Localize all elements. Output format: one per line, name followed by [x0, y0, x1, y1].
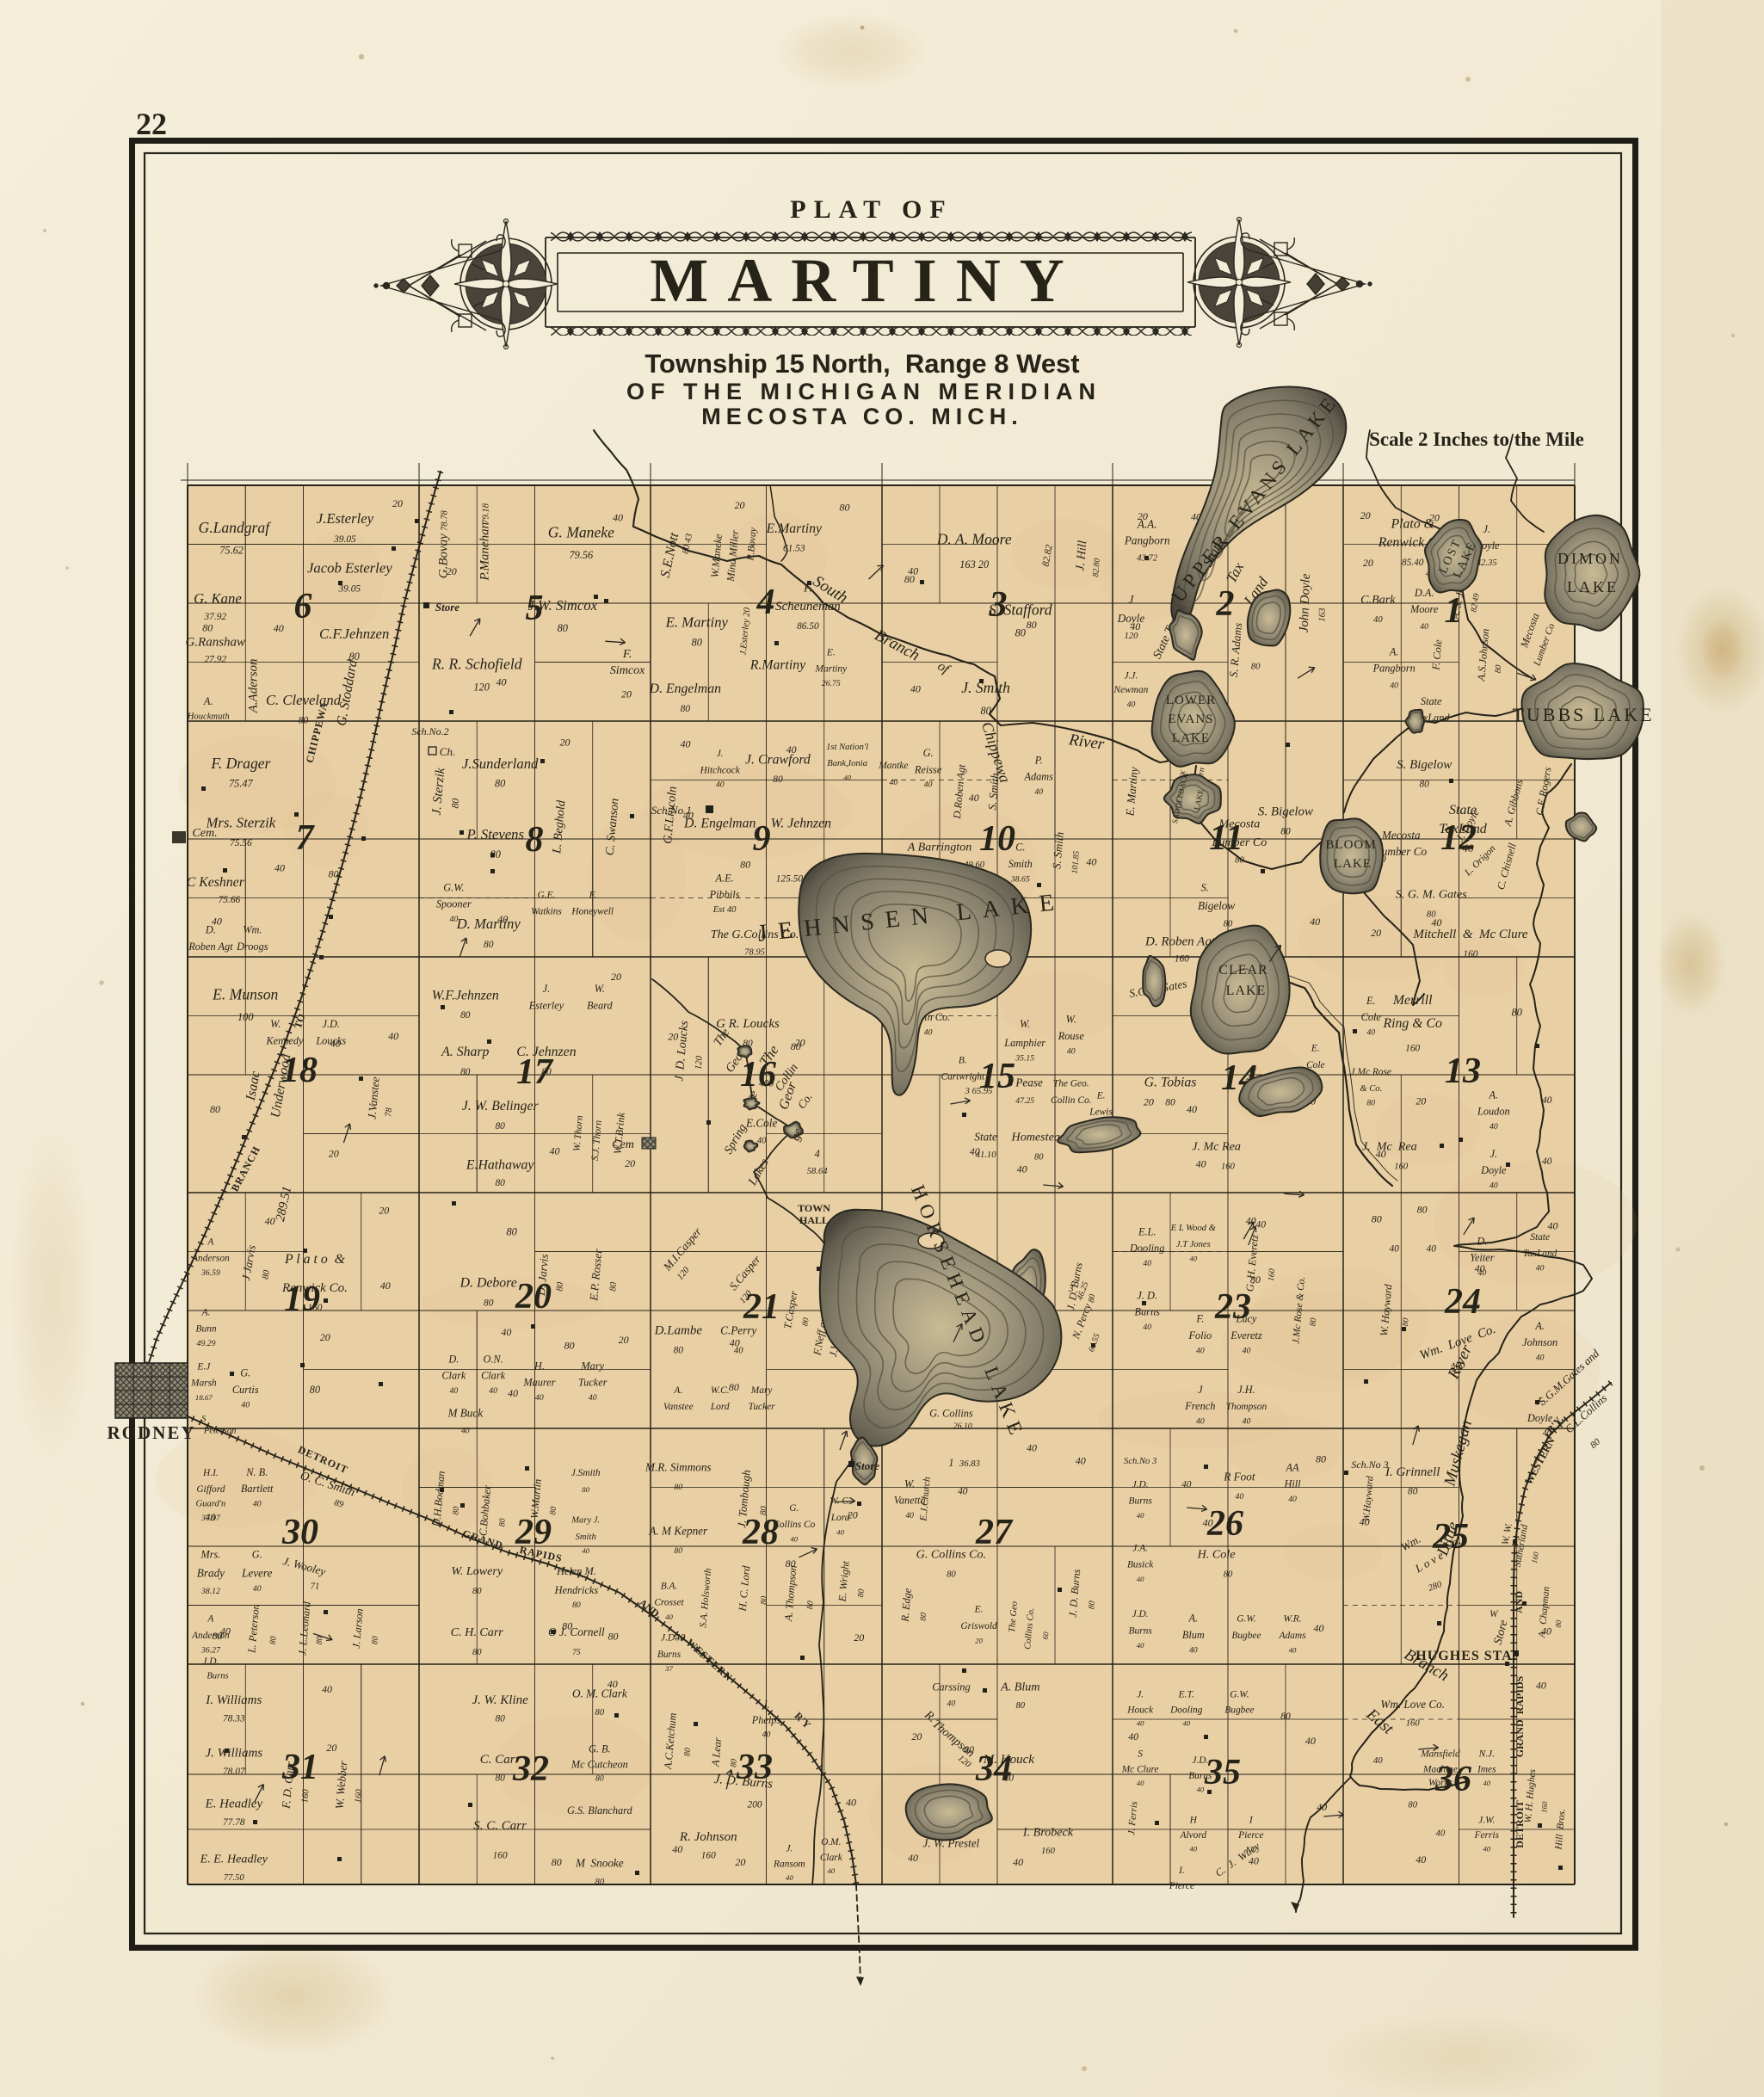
svg-text:Burns: Burns [657, 1650, 682, 1660]
svg-text:Bunn: Bunn [195, 1324, 216, 1335]
svg-text:E.J: E.J [196, 1362, 211, 1372]
svg-text:Carssing: Carssing [932, 1681, 970, 1693]
svg-text:E. Martiny: E. Martiny [665, 614, 729, 630]
svg-text:80: 80 [564, 1339, 575, 1351]
svg-text:Mary: Mary [580, 1360, 604, 1372]
svg-text:125.50: 125.50 [776, 873, 804, 884]
svg-text:27.92: 27.92 [204, 655, 226, 665]
svg-text:Thompson: Thompson [1226, 1402, 1267, 1412]
svg-text:80: 80 [805, 1601, 816, 1610]
svg-text:G.W.: G.W. [443, 881, 464, 893]
svg-text:40: 40 [1305, 1735, 1316, 1747]
svg-text:J. Hill: J. Hill [1073, 540, 1089, 572]
svg-text:40: 40 [905, 1511, 914, 1520]
svg-text:160: 160 [493, 1850, 508, 1860]
svg-text:80: 80 [451, 1506, 461, 1515]
svg-text:78.33: 78.33 [223, 1714, 245, 1724]
svg-text:40: 40 [1255, 1218, 1266, 1230]
svg-text:160: 160 [1221, 1163, 1236, 1172]
svg-text:40: 40 [843, 774, 851, 782]
svg-text:40: 40 [910, 683, 921, 695]
svg-text:J. Mc Rea: J. Mc Rea [1192, 1140, 1241, 1154]
svg-text:40: 40 [1027, 1441, 1037, 1453]
svg-text:H. Cole: H. Cole [1197, 1548, 1236, 1562]
svg-text:8: 8 [526, 820, 544, 860]
svg-text:20: 20 [559, 736, 570, 748]
svg-text:160: 160 [300, 1788, 311, 1803]
svg-text:40: 40 [947, 1699, 956, 1709]
svg-text:LAKE: LAKE [1334, 857, 1372, 871]
svg-text:Alvord: Alvord [1180, 1830, 1207, 1841]
svg-text:Brady: Brady [197, 1567, 225, 1580]
svg-text:40: 40 [1463, 842, 1475, 854]
svg-text:J.: J. [717, 749, 724, 759]
svg-text:Dooling: Dooling [1129, 1243, 1164, 1255]
svg-text:36.59: 36.59 [200, 1268, 220, 1278]
svg-text:20: 20 [326, 1742, 336, 1754]
svg-text:80: 80 [1034, 1153, 1044, 1163]
svg-text:Levere: Levere [241, 1567, 273, 1580]
svg-text:101.85: 101.85 [1070, 850, 1082, 874]
svg-text:80: 80 [558, 622, 568, 634]
svg-text:DETROIT: DETROIT [1514, 1800, 1526, 1847]
svg-text:G R. Loucks: G R. Loucks [716, 1017, 780, 1031]
svg-text:80: 80 [495, 778, 505, 790]
svg-text:80: 80 [310, 1384, 320, 1396]
svg-text:G.W.: G.W. [1237, 1614, 1255, 1625]
svg-text:75.62: 75.62 [219, 544, 244, 556]
svg-text:80: 80 [582, 1485, 589, 1494]
svg-text:MARTINY: MARTINY [650, 246, 1082, 315]
svg-text:80: 80 [681, 704, 691, 714]
svg-text:Cem: Cem [612, 1138, 634, 1151]
svg-text:80: 80 [740, 859, 750, 871]
svg-text:80: 80 [572, 1601, 581, 1610]
svg-text:40: 40 [1189, 1645, 1198, 1655]
svg-text:34: 34 [975, 1749, 1012, 1789]
svg-text:F.: F. [622, 647, 632, 661]
svg-text:40: 40 [734, 1346, 743, 1355]
svg-text:40: 40 [1490, 1181, 1498, 1191]
svg-text:Vanstee: Vanstee [663, 1402, 694, 1412]
svg-text:E. E. Headley: E. E. Headley [200, 1852, 268, 1866]
svg-text:E.: E. [1311, 1044, 1320, 1054]
svg-text:Guard'n: Guard'n [195, 1499, 225, 1508]
svg-text:30: 30 [281, 1513, 318, 1552]
svg-text:80: 80 [773, 774, 783, 785]
svg-text:Sch.No 3: Sch.No 3 [1351, 1459, 1388, 1471]
svg-text:80: 80 [682, 1748, 693, 1757]
svg-text:Watkins: Watkins [531, 907, 562, 917]
svg-text:80: 80 [552, 1856, 562, 1868]
svg-text:Hendricks: Hendricks [554, 1584, 599, 1596]
svg-text:40: 40 [1243, 1417, 1251, 1427]
svg-text:40: 40 [1196, 1417, 1205, 1427]
svg-text:Curtis: Curtis [232, 1384, 259, 1396]
svg-text:20: 20 [735, 499, 745, 511]
svg-text:20: 20 [911, 1730, 922, 1742]
svg-text:18.67: 18.67 [195, 1393, 213, 1402]
svg-text:40: 40 [489, 1386, 497, 1396]
svg-text:LOWER: LOWER [1166, 694, 1216, 707]
svg-text:Moore: Moore [1409, 603, 1439, 615]
svg-text:40: 40 [762, 1730, 771, 1739]
svg-text:D.A.: D.A. [1414, 587, 1434, 599]
svg-text:C.: C. [1015, 842, 1025, 854]
svg-text:DIMON: DIMON [1557, 550, 1623, 567]
svg-text:W.: W. [270, 1018, 281, 1030]
svg-text:1: 1 [1445, 591, 1463, 631]
svg-text:P. Stevens: P. Stevens [466, 826, 524, 842]
svg-text:160: 160 [1175, 953, 1189, 964]
svg-text:160: 160 [1267, 1268, 1277, 1282]
svg-text:G. Maneke: G. Maneke [548, 523, 614, 540]
svg-text:75.56: 75.56 [230, 838, 252, 848]
svg-text:RODNEY: RODNEY [107, 1422, 195, 1443]
svg-text:40: 40 [388, 1030, 398, 1042]
svg-text:82.80: 82.80 [1091, 558, 1102, 577]
svg-text:80: 80 [268, 1636, 279, 1645]
svg-text:40: 40 [790, 1535, 798, 1544]
svg-text:160: 160 [1406, 1719, 1421, 1729]
svg-text:J. D.: J. D. [1137, 1289, 1157, 1301]
svg-text:120: 120 [473, 681, 489, 693]
svg-text:D. Engelman: D. Engelman [683, 816, 756, 830]
svg-text:80: 80 [1280, 1712, 1291, 1722]
svg-text:80: 80 [729, 1381, 739, 1393]
svg-text:Droogs: Droogs [236, 941, 268, 953]
svg-text:J.A.: J.A. [1132, 1543, 1148, 1553]
svg-text:Bugbee: Bugbee [1231, 1631, 1261, 1641]
svg-text:80: 80 [595, 1708, 605, 1718]
svg-text:C Keshner: C Keshner [187, 875, 245, 890]
svg-text:20: 20 [329, 1148, 339, 1160]
svg-text:18: 18 [281, 1051, 318, 1090]
svg-text:80: 80 [210, 1103, 220, 1115]
svg-text:80: 80 [1087, 1293, 1098, 1304]
svg-text:Johnson: Johnson [1522, 1336, 1557, 1348]
svg-text:C.Bark: C.Bark [1360, 593, 1396, 607]
svg-text:G.S. Blanchard: G.S. Blanchard [567, 1804, 633, 1816]
svg-text:40: 40 [450, 1386, 459, 1396]
svg-text:S. C. Carr: S. C. Carr [473, 1819, 527, 1833]
svg-text:A.: A. [1489, 1089, 1499, 1101]
svg-text:36.83: 36.83 [959, 1459, 980, 1469]
svg-text:37.92: 37.92 [203, 612, 226, 622]
svg-text:Lord: Lord [710, 1402, 730, 1412]
svg-text:47.25: 47.25 [1015, 1096, 1034, 1106]
svg-text:3: 3 [989, 585, 1008, 625]
svg-text:J.W.: J.W. [1478, 1815, 1495, 1825]
svg-text:Imes: Imes [1477, 1764, 1496, 1774]
svg-text:160: 160 [354, 1788, 364, 1803]
svg-text:80: 80 [856, 1588, 867, 1598]
svg-text:Reisse: Reisse [914, 763, 942, 775]
svg-text:79.56: 79.56 [569, 549, 594, 561]
svg-text:S.: S. [1201, 881, 1209, 893]
svg-text:A.: A. [1534, 1320, 1545, 1332]
svg-text:80: 80 [1165, 1098, 1175, 1108]
svg-text:Esterley: Esterley [528, 999, 564, 1011]
svg-text:A. M Kepner: A. M Kepner [648, 1524, 708, 1537]
svg-text:40: 40 [589, 1393, 597, 1403]
svg-text:36.27: 36.27 [200, 1645, 221, 1655]
svg-text:F.: F. [1195, 1313, 1204, 1325]
svg-text:TOWN: TOWN [798, 1202, 830, 1214]
svg-text:Bigelow: Bigelow [1198, 899, 1235, 912]
svg-text:35: 35 [1204, 1753, 1241, 1792]
svg-text:G. Tobias: G. Tobias [1144, 1076, 1197, 1090]
svg-text:The Geo.: The Geo. [1053, 1079, 1089, 1089]
svg-text:40: 40 [1310, 916, 1320, 928]
svg-text:Houckmuth: Houckmuth [187, 712, 230, 721]
svg-text:40: 40 [274, 862, 285, 874]
svg-text:Lord: Lord [830, 1513, 850, 1523]
svg-text:80: 80 [1419, 780, 1429, 790]
svg-text:80: 80 [674, 1483, 682, 1492]
svg-text:J.D.: J.D. [1132, 1480, 1149, 1490]
svg-text:160: 160 [1463, 949, 1477, 959]
svg-text:20: 20 [854, 1631, 864, 1644]
svg-text:A.A.: A.A. [1137, 517, 1157, 530]
svg-text:160: 160 [1405, 1044, 1420, 1054]
svg-text:G.: G. [240, 1367, 250, 1379]
svg-text:E.T.: E.T. [1178, 1689, 1194, 1699]
svg-text:40: 40 [1127, 700, 1136, 710]
svg-text:77.50: 77.50 [224, 1873, 245, 1883]
svg-text:D. Martiny: D. Martiny [456, 916, 521, 932]
svg-text:Busick: Busick [1127, 1560, 1154, 1570]
svg-text:58.64: 58.64 [807, 1167, 829, 1176]
svg-text:A.Aderson: A.Aderson [247, 658, 261, 713]
svg-text:80: 80 [595, 1878, 605, 1887]
svg-text:S. Bigelow: S. Bigelow [1258, 805, 1313, 819]
svg-text:Adams: Adams [1279, 1631, 1307, 1641]
svg-text:R Foot: R Foot [1223, 1470, 1255, 1483]
svg-text:80: 80 [472, 1587, 482, 1596]
svg-text:Cem.: Cem. [192, 827, 217, 840]
svg-text:37.97: 37.97 [200, 1514, 221, 1523]
svg-text:40: 40 [1189, 1845, 1197, 1853]
svg-text:AND: AND [1513, 1591, 1525, 1613]
svg-text:20: 20 [611, 971, 621, 983]
svg-text:35.15: 35.15 [1015, 1054, 1034, 1064]
svg-text:Phelps: Phelps [751, 1714, 781, 1726]
svg-text:PLAT OF: PLAT OF [790, 195, 953, 224]
svg-text:State: State [974, 1131, 997, 1144]
svg-text:20: 20 [379, 1205, 389, 1217]
svg-text:40: 40 [1128, 1730, 1138, 1742]
svg-text:Lamphier: Lamphier [1003, 1037, 1045, 1049]
svg-text:Bugbee: Bugbee [1224, 1705, 1254, 1715]
svg-text:State: State [1449, 803, 1477, 817]
svg-text:26: 26 [1206, 1504, 1243, 1544]
svg-text:80: 80 [791, 1040, 801, 1052]
svg-text:A Barrington: A Barrington [907, 841, 972, 854]
svg-text:40: 40 [241, 1400, 250, 1409]
svg-text:26.10: 26.10 [953, 1422, 972, 1431]
svg-text:Ch.: Ch. [440, 745, 455, 758]
svg-text:40: 40 [1137, 1511, 1144, 1520]
svg-text:80: 80 [1016, 1701, 1026, 1711]
svg-text:80: 80 [370, 1636, 380, 1645]
svg-text:O. M. Clark: O. M. Clark [572, 1687, 628, 1699]
svg-text:27: 27 [975, 1513, 1014, 1552]
svg-text:F. Drager: F. Drager [210, 755, 270, 772]
svg-text:80: 80 [1554, 1619, 1564, 1628]
svg-text:O.N.: O.N. [483, 1353, 503, 1365]
svg-text:40: 40 [1243, 1346, 1251, 1355]
svg-text:HUGHES STA.: HUGHES STA. [1416, 1649, 1516, 1663]
svg-text:H.: H. [534, 1360, 545, 1372]
svg-text:40: 40 [1196, 1346, 1205, 1355]
svg-text:E.Hathaway: E.Hathaway [466, 1158, 535, 1173]
svg-text:80: 80 [460, 1010, 471, 1021]
svg-text:State: State [1421, 695, 1442, 707]
svg-text:Ring & Co: Ring & Co [1382, 1016, 1442, 1031]
svg-text:Houck: Houck [1126, 1705, 1154, 1715]
svg-text:40: 40 [1427, 1244, 1437, 1255]
svg-text:40: 40 [681, 737, 691, 749]
svg-text:80: 80 [472, 1648, 482, 1657]
svg-text:B.: B. [959, 1055, 967, 1065]
svg-text:1: 1 [948, 1457, 953, 1469]
svg-text:Clark: Clark [820, 1853, 843, 1863]
svg-text:20: 20 [975, 1636, 983, 1644]
svg-text:A.: A. [1389, 645, 1399, 657]
svg-text:40: 40 [508, 1387, 518, 1399]
svg-text:AA: AA [1286, 1461, 1300, 1473]
svg-text:Loucks: Loucks [315, 1034, 346, 1046]
svg-text:15: 15 [979, 1057, 1015, 1096]
svg-text:Hill: Hill [1283, 1478, 1301, 1490]
svg-text:Ferris: Ferris [1474, 1830, 1500, 1841]
svg-text:60: 60 [1041, 1631, 1051, 1639]
svg-text:J.T Jones: J.T Jones [1176, 1240, 1211, 1249]
svg-text:P l a t o &: P l a t o & [284, 1252, 346, 1267]
svg-text:40: 40 [1483, 1845, 1490, 1853]
svg-text:40: 40 [924, 780, 933, 790]
svg-text:Griswold: Griswold [960, 1621, 997, 1631]
svg-text:Clark: Clark [481, 1369, 506, 1381]
svg-text:40: 40 [1143, 1259, 1151, 1268]
svg-text:40: 40 [1086, 856, 1096, 868]
svg-text:40: 40 [1289, 1645, 1297, 1654]
svg-text:J.H.: J.H. [1237, 1384, 1255, 1396]
svg-text:C.F.Jehnzen: C.F.Jehnzen [319, 626, 389, 642]
svg-text:E.: E. [1096, 1090, 1106, 1101]
svg-text:39.05: 39.05 [333, 534, 356, 545]
svg-text:40: 40 [1542, 1095, 1552, 1106]
svg-text:Anderson: Anderson [191, 1631, 230, 1641]
svg-text:160: 160 [1539, 1801, 1549, 1814]
svg-text:E.: E. [826, 647, 836, 657]
svg-text:G.Landgraf: G.Landgraf [198, 519, 271, 536]
svg-text:Maurer: Maurer [522, 1377, 555, 1389]
svg-text:G. Kane: G. Kane [194, 590, 242, 607]
svg-text:Roben Agt: Roben Agt [188, 941, 233, 953]
svg-text:80: 80 [484, 1298, 494, 1309]
svg-text:20: 20 [621, 688, 632, 700]
svg-text:80: 80 [1494, 664, 1504, 674]
svg-text:80: 80 [1366, 1099, 1375, 1108]
svg-text:80: 80 [1251, 663, 1261, 672]
svg-text:J.D.: J.D. [323, 1018, 341, 1030]
svg-text:80: 80 [490, 848, 501, 860]
svg-text:Dooling: Dooling [1169, 1705, 1203, 1715]
svg-text:A.: A. [201, 1307, 211, 1317]
svg-text:M Buck: M Buck [447, 1406, 484, 1419]
svg-text:Store: Store [855, 1459, 879, 1472]
svg-text:I. Grinnell: I. Grinnell [1385, 1465, 1440, 1479]
svg-text:John Doyle: John Doyle [1298, 573, 1313, 633]
svg-text:Hitchcock: Hitchcock [700, 765, 741, 775]
svg-text:G.: G. [252, 1549, 262, 1561]
svg-text:CLEAR: CLEAR [1218, 963, 1267, 978]
svg-text:40: 40 [1416, 1853, 1426, 1866]
svg-text:W: W [1490, 1609, 1499, 1619]
svg-text:40: 40 [827, 1866, 835, 1875]
svg-text:40: 40 [535, 1393, 544, 1403]
svg-text:G. Collins: G. Collins [929, 1407, 973, 1419]
svg-text:G.Bovay: G.Bovay [436, 534, 450, 578]
svg-text:Burns: Burns [1129, 1496, 1153, 1507]
svg-text:20: 20 [320, 1331, 330, 1343]
svg-text:A.: A. [673, 1385, 682, 1396]
svg-text:S. Bigelow: S. Bigelow [1397, 758, 1452, 772]
svg-text:24: 24 [1444, 1282, 1481, 1322]
svg-text:Collins Co: Collins Co [773, 1520, 815, 1530]
svg-text:80: 80 [1408, 1800, 1417, 1810]
svg-text:20: 20 [392, 497, 403, 509]
svg-text:20: 20 [1360, 509, 1371, 521]
svg-text:5: 5 [526, 589, 544, 628]
svg-text:E.Cole: E.Cole [745, 1116, 777, 1129]
svg-text:J.: J. [1490, 1148, 1498, 1160]
svg-text:J.D.: J.D. [202, 1656, 219, 1667]
svg-text:J.D.: J.D. [661, 1633, 677, 1644]
svg-text:40: 40 [786, 1873, 793, 1882]
svg-text:40: 40 [549, 1144, 559, 1156]
svg-text:J.: J. [1137, 1689, 1144, 1699]
svg-text:M Snooke: M Snooke [575, 1857, 624, 1870]
svg-text:80: 80 [1015, 626, 1026, 638]
svg-text:4: 4 [815, 1148, 820, 1160]
svg-text:49.29: 49.29 [197, 1339, 216, 1348]
svg-text:Mecosta: Mecosta [1381, 829, 1421, 842]
svg-text:41.10: 41.10 [976, 1150, 997, 1160]
svg-text:40: 40 [958, 1487, 968, 1497]
svg-text:40: 40 [716, 780, 725, 790]
svg-text:Tucker: Tucker [749, 1402, 776, 1412]
svg-text:40: 40 [1137, 1719, 1144, 1728]
svg-text:75.66: 75.66 [219, 895, 241, 905]
svg-text:W.: W. [595, 983, 605, 995]
svg-text:Smith: Smith [1008, 858, 1033, 870]
svg-text:23: 23 [1214, 1287, 1251, 1327]
svg-text:78: 78 [384, 1107, 394, 1117]
svg-text:Honeywell: Honeywell [571, 907, 614, 917]
svg-text:C. H. Carr: C. H. Carr [451, 1625, 504, 1639]
svg-text:Ransom: Ransom [773, 1860, 805, 1870]
svg-text:80: 80 [329, 868, 339, 880]
svg-text:71: 71 [311, 1582, 320, 1591]
svg-text:160: 160 [701, 1850, 716, 1860]
svg-text:F.: F. [589, 891, 596, 901]
svg-text:9: 9 [753, 819, 771, 859]
svg-text:LAKE: LAKE [1567, 578, 1619, 595]
svg-text:Pierce: Pierce [1169, 1881, 1194, 1891]
